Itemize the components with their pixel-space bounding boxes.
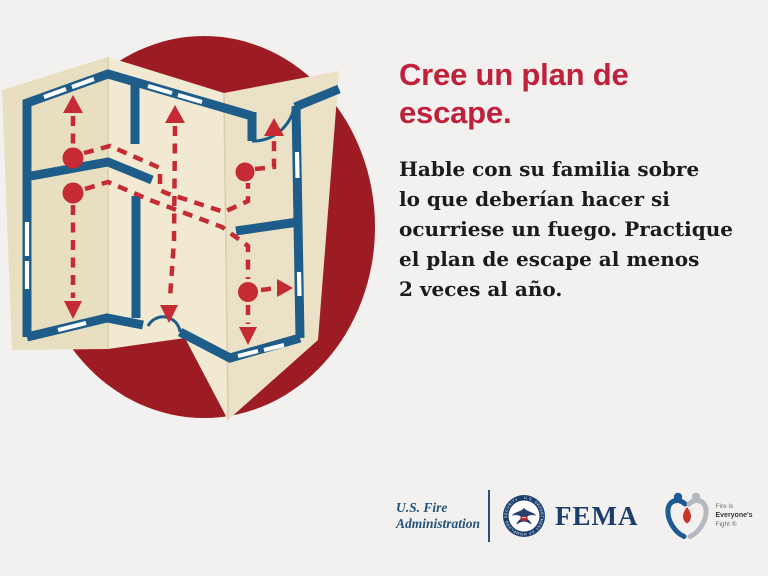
body-copy: Hable con su familia sobre lo que deberí… [399, 154, 755, 304]
body-line: el plan de escape al menos [399, 244, 755, 274]
fema-wordmark: FEMA [555, 501, 638, 532]
body-line: Hable con su familia sobre [399, 154, 755, 184]
fief-line-3: Fight ® [715, 521, 752, 529]
footer-logos: U.S. Fire Administration U.S. DEPARTMENT… [396, 486, 753, 546]
fief-logo-text: Fire is Everyone's Fight ® [715, 503, 752, 529]
body-line: lo que deberían hacer si [399, 184, 755, 214]
usfa-wordmark: U.S. Fire Administration [396, 500, 474, 533]
footer-divider [488, 490, 490, 542]
fief-line-2: Everyone's [715, 511, 752, 520]
dhs-seal-icon: U.S. DEPARTMENT OF HOMELAND SECURITY [502, 494, 546, 538]
title-line-1: Cree un plan de [399, 56, 755, 94]
body-line: 2 veces al año. [399, 274, 755, 304]
psa-card: Cree un plan de escape. Hable con su fam… [0, 0, 768, 576]
body-line: ocurriese un fuego. Practique [399, 214, 755, 244]
fief-line-1: Fire is [715, 503, 752, 511]
fief-figures-icon [664, 492, 710, 540]
text-block: Cree un plan de escape. Hable con su fam… [399, 56, 755, 304]
usfa-line-2: Administration [396, 516, 474, 532]
fief-logo: Fire is Everyone's Fight ® [664, 492, 752, 540]
usfa-line-1: U.S. Fire [396, 500, 474, 516]
page-title: Cree un plan de escape. [399, 56, 755, 133]
title-line-2: escape. [399, 94, 755, 132]
escape-plan-map-illustration [0, 0, 400, 460]
